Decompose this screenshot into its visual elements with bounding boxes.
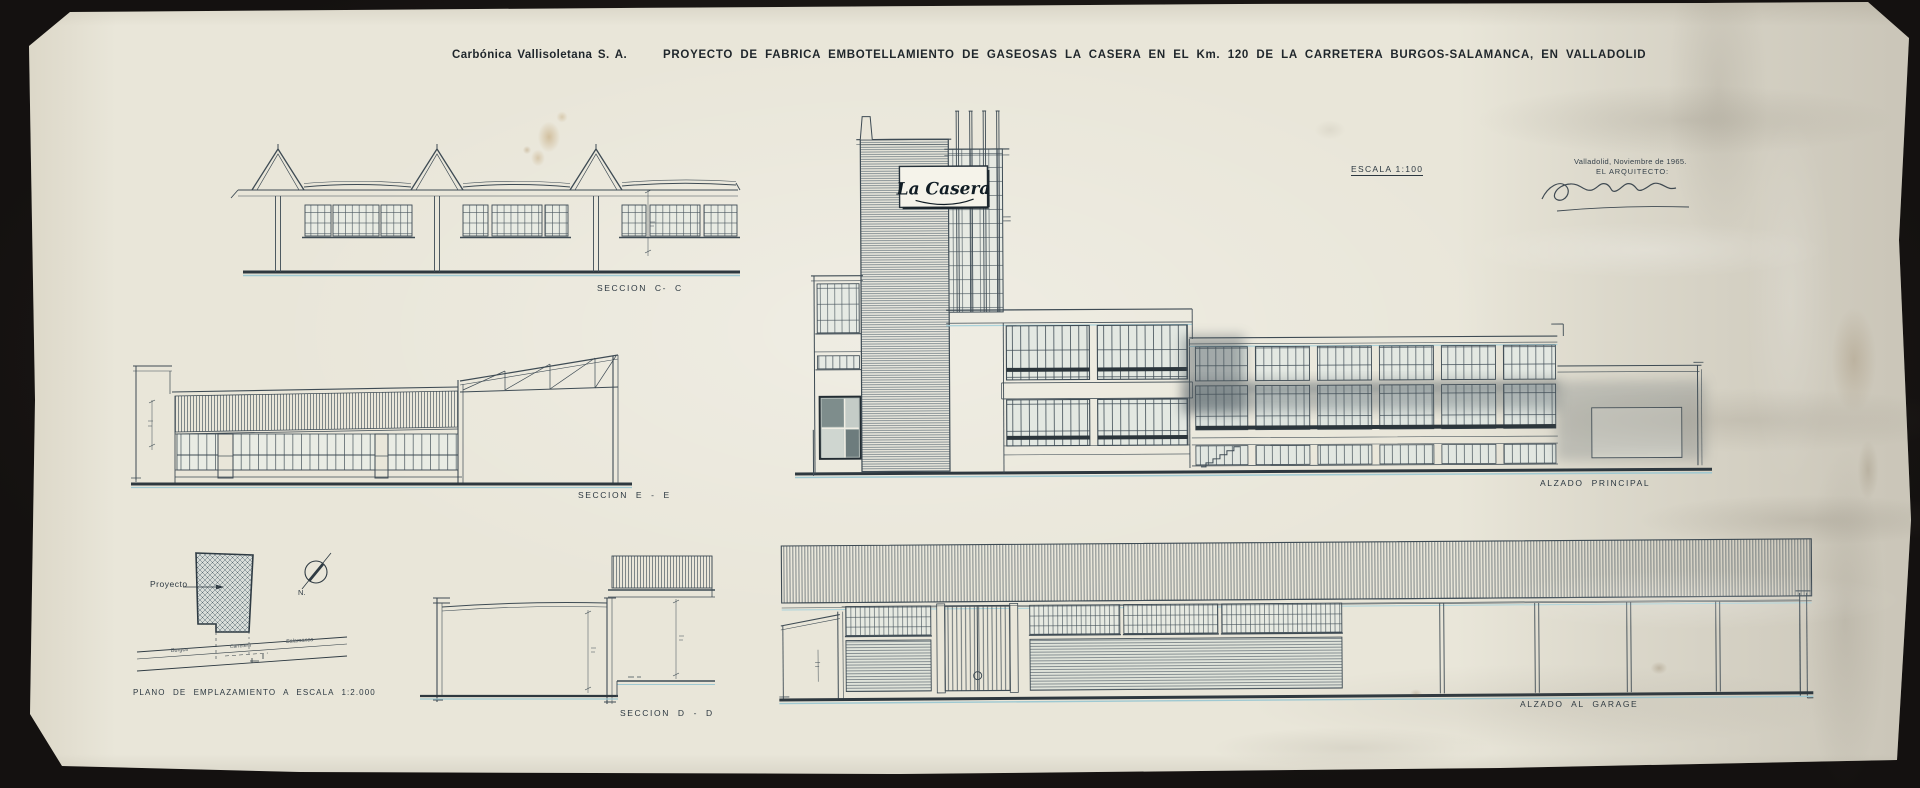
drawing-seccion-cc <box>231 144 740 276</box>
label-alzado-garage: ALZADO AL GARAGE <box>1520 699 1638 709</box>
drawing-alzado-garage <box>778 539 1813 705</box>
place-date-note: Valladolid, Noviembre de 1965. <box>1574 157 1687 166</box>
label-seccion-cc: SECCION C- C <box>597 283 683 293</box>
north-label: N. <box>298 588 306 597</box>
brand-sign-text: La Casera <box>896 179 991 199</box>
scanned-sheet-photo: Burgos Carretera Salamanca <box>0 0 1920 788</box>
label-project-plot: Proyecto <box>150 579 188 589</box>
drawing-site-plan: Burgos Carretera Salamanca <box>137 553 347 671</box>
sheet-drawings: Burgos Carretera Salamanca <box>0 0 1920 788</box>
tower-chimney <box>860 117 872 140</box>
architect-signature <box>1542 183 1689 211</box>
compass-icon <box>302 553 331 589</box>
road-label-left: Burgos <box>171 647 189 654</box>
road-label-right: Salamanca <box>286 637 314 645</box>
scale-note: ESCALA 1:100 <box>1351 164 1423 176</box>
garage-door <box>945 605 1011 690</box>
company-name: Carbónica Vallisoletana S. A. <box>452 49 627 61</box>
sheet-title-block: Carbónica Vallisoletana S. A. PROYECTO D… <box>452 49 1712 61</box>
label-seccion-ee: SECCION E - E <box>578 490 671 500</box>
drawing-seccion-ee <box>131 355 632 488</box>
label-alzado-principal: ALZADO PRINCIPAL <box>1540 478 1650 488</box>
road-label-center: Carretera <box>230 643 252 650</box>
project-title: PROYECTO DE FABRICA EMBOTELLAMIENTO DE G… <box>663 49 1646 61</box>
label-site-plan: PLANO DE EMPLAZAMIENTO A ESCALA 1:2.000 <box>133 688 376 697</box>
drawing-seccion-dd <box>420 556 715 704</box>
architect-line: EL ARQUITECTO: <box>1596 167 1669 176</box>
la-casera-sign: La Casera <box>896 166 991 208</box>
label-seccion-dd: SECCION D - D <box>620 708 714 718</box>
